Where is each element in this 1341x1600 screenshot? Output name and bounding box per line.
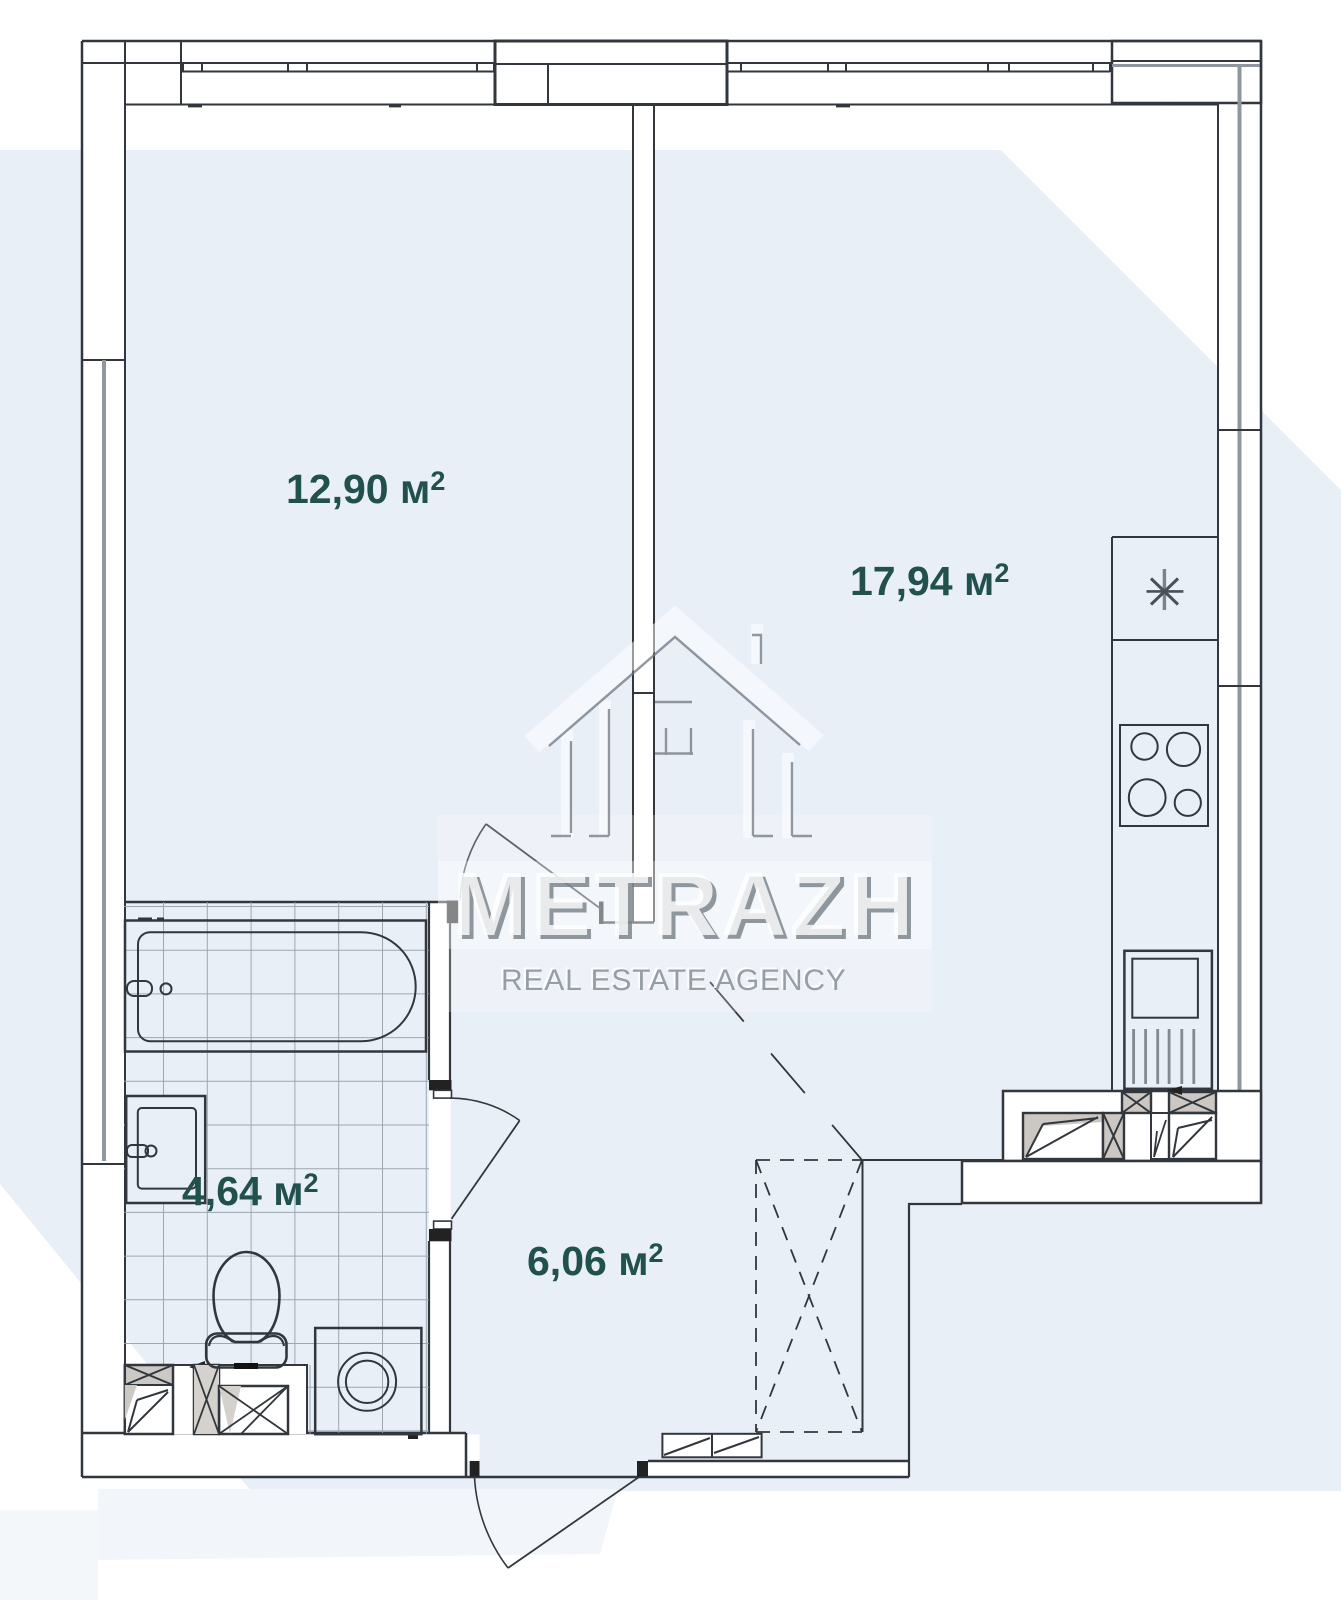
svg-text:4,64 м2: 4,64 м2 [182,1168,319,1214]
svg-text:METRAZH: METRAZH [452,855,916,955]
svg-text:12,90 м2: 12,90 м2 [286,466,445,512]
svg-text:6,06 м2: 6,06 м2 [527,1238,664,1284]
svg-text:17,94 м2: 17,94 м2 [850,558,1009,604]
svg-text:REAL ESTATE AGENCY: REAL ESTATE AGENCY [501,964,847,997]
